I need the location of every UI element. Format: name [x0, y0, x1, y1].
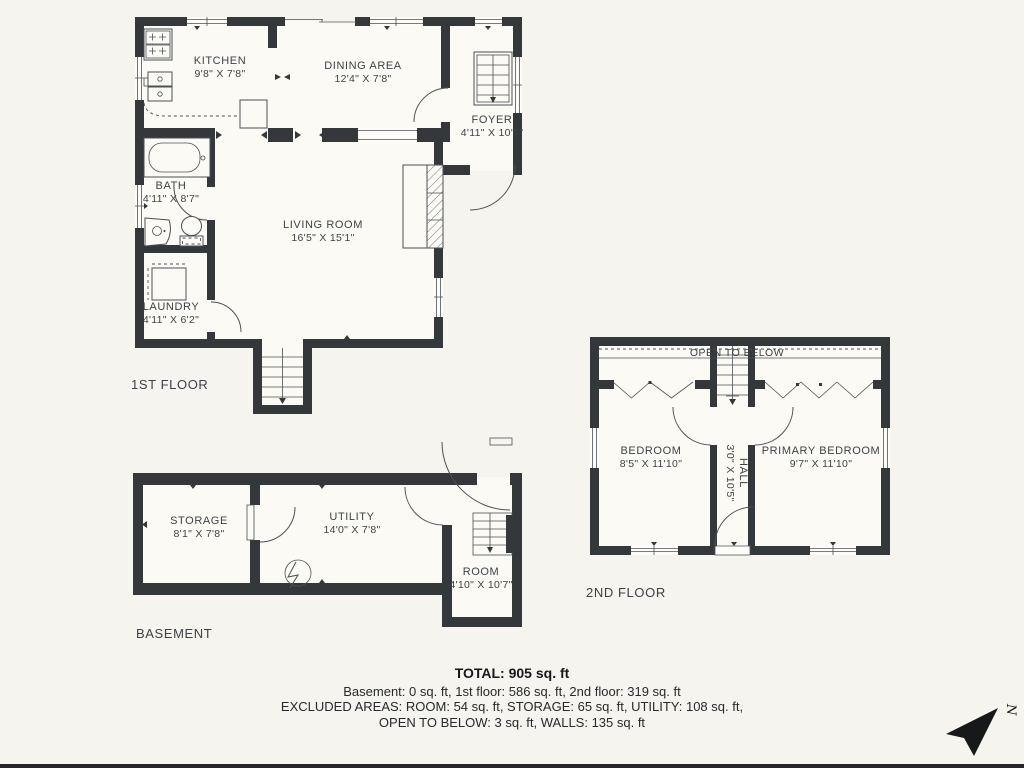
- room-name: ROOM: [449, 566, 512, 579]
- storage-dims: 8'1" X 7'8": [170, 528, 228, 541]
- laundry-dims: 4'11" X 6'2": [143, 314, 200, 327]
- stove-icon: [144, 29, 172, 60]
- room-label-room: ROOM 4'10" X 10'7": [449, 566, 512, 592]
- dining-name: DINING AREA: [324, 60, 402, 73]
- kitchen-sink-icon: [144, 72, 172, 101]
- foyer-dims: 4'11" X 10'7": [461, 127, 523, 140]
- room-label-bath: BATH 4'11" X 8'7": [143, 180, 199, 206]
- compass-icon: N: [938, 698, 1023, 760]
- kitchen-dims: 9'8" X 7'8": [194, 68, 246, 81]
- primary-bedroom-dims: 9'7" X 11'10": [762, 458, 881, 471]
- compass-north-letter: N: [1003, 703, 1018, 716]
- room-label-primary-bedroom: PRIMARY BEDROOM 9'7" X 11'10": [762, 445, 881, 471]
- bottom-bar: [0, 764, 1024, 768]
- room-label-utility: UTILITY 14'0" X 7'8": [323, 511, 380, 537]
- area-summary: TOTAL: 905 sq. ft Basement: 0 sq. ft, 1s…: [0, 666, 1024, 730]
- basement-interior: [137, 477, 518, 623]
- floor-plan-page: KITCHEN 9'8" X 7'8" DINING AREA 12'4" X …: [0, 0, 1024, 768]
- open-to-below-label: OPEN TO BELOW: [690, 347, 784, 359]
- bath-name: BATH: [143, 180, 199, 193]
- dining-dims: 12'4" X 7'8": [324, 73, 402, 86]
- bath-dims: 4'11" X 8'7": [143, 193, 199, 206]
- room-label-bedroom: BEDROOM 8'5" X 11'10": [620, 445, 682, 471]
- room-label-living: LIVING ROOM 16'5" X 15'1": [283, 219, 363, 245]
- toilet-icon: [180, 217, 203, 247]
- foyer-name: FOYER: [461, 114, 523, 127]
- bathroom-sink-icon: [145, 218, 170, 246]
- room-dims: 4'10" X 10'7": [449, 579, 512, 592]
- total-area: TOTAL: 905 sq. ft: [0, 666, 1024, 682]
- utility-name: UTILITY: [323, 511, 380, 524]
- living-dims: 16'5" X 15'1": [283, 232, 363, 245]
- bedroom-dims: 8'5" X 11'10": [620, 458, 682, 471]
- living-name: LIVING ROOM: [283, 219, 363, 232]
- hall-dims: 3'0" X 10'5": [723, 444, 736, 501]
- kitchen-name: KITCHEN: [194, 55, 246, 68]
- first-floor-label: 1ST FLOOR: [131, 377, 208, 392]
- room-label-laundry: LAUNDRY 4'11" X 6'2": [143, 301, 200, 327]
- washer-icon: [148, 264, 186, 300]
- hall-name: HALL: [736, 444, 749, 501]
- primary-bedroom-name: PRIMARY BEDROOM: [762, 445, 881, 458]
- basement-label: BASEMENT: [136, 626, 212, 641]
- floor-areas-line: Basement: 0 sq. ft, 1st floor: 586 sq. f…: [0, 684, 1024, 700]
- storage-name: STORAGE: [170, 515, 228, 528]
- room-label-foyer: FOYER 4'11" X 10'7": [461, 114, 523, 140]
- room-label-dining: DINING AREA 12'4" X 7'8": [324, 60, 402, 86]
- laundry-name: LAUNDRY: [143, 301, 200, 314]
- fireplace-icon: [403, 165, 443, 248]
- bathtub-icon: [144, 138, 210, 177]
- kitchen-appliance-icon: [240, 100, 267, 128]
- excluded-areas-line-2: OPEN TO BELOW: 3 sq. ft, WALLS: 135 sq. …: [0, 715, 1024, 731]
- room-label-storage: STORAGE 8'1" X 7'8": [170, 515, 228, 541]
- north-arrow: [946, 708, 998, 756]
- bedroom-name: BEDROOM: [620, 445, 682, 458]
- room-label-hall: HALL 3'0" X 10'5": [723, 444, 749, 501]
- excluded-areas-line-1: EXCLUDED AREAS: ROOM: 54 sq. ft, STORAGE…: [0, 699, 1024, 715]
- utility-dims: 14'0" X 7'8": [323, 524, 380, 537]
- second-floor-label: 2ND FLOOR: [586, 585, 666, 600]
- room-label-kitchen: KITCHEN 9'8" X 7'8": [194, 55, 246, 81]
